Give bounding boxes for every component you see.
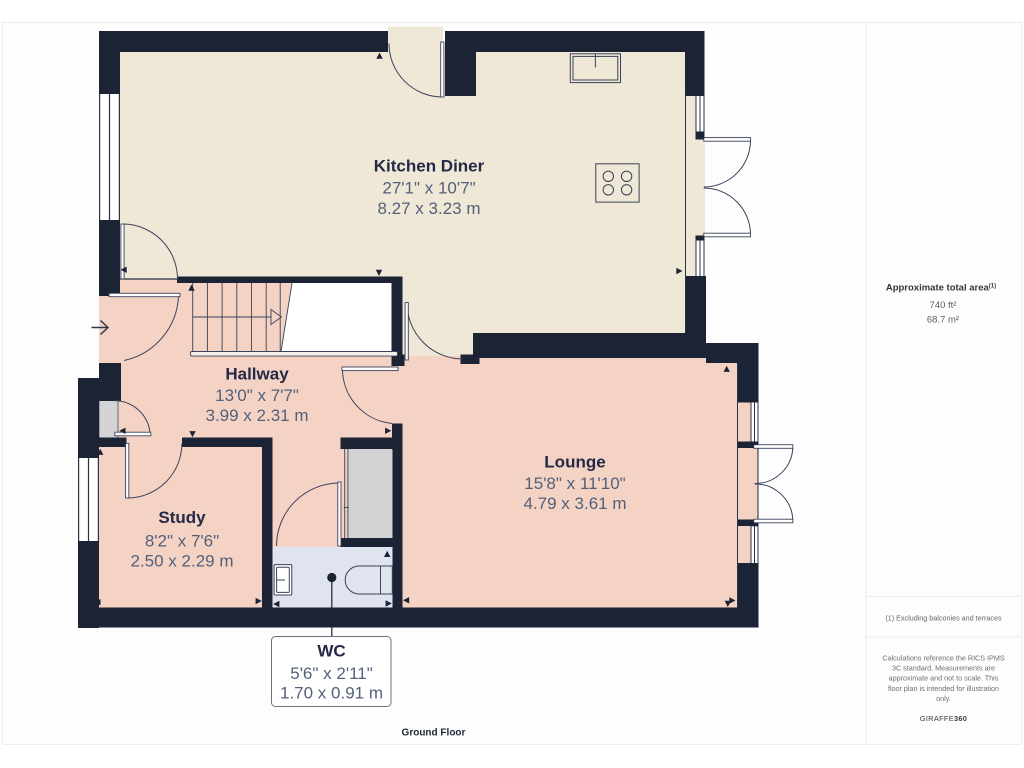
svg-text:4.79 x 3.61 m: 4.79 x 3.61 m xyxy=(523,494,626,513)
svg-text:floor plan is intended for ill: floor plan is intended for illustration xyxy=(888,684,999,693)
svg-text:WC: WC xyxy=(317,642,345,661)
svg-text:3.99 x 2.31 m: 3.99 x 2.31 m xyxy=(205,406,308,425)
svg-text:5'6" x 2'11": 5'6" x 2'11" xyxy=(290,664,373,683)
svg-text:27'1" x 10'7": 27'1" x 10'7" xyxy=(382,179,475,198)
svg-text:Kitchen Diner: Kitchen Diner xyxy=(374,157,485,176)
svg-text:Approximate total area(1): Approximate total area(1) xyxy=(886,283,996,294)
svg-text:Hallway: Hallway xyxy=(225,365,289,384)
svg-text:approximate and not to scale.: approximate and not to scale. This xyxy=(889,674,999,683)
svg-text:15'8" x 11'10": 15'8" x 11'10" xyxy=(524,474,625,493)
svg-text:3C standard. Measurements are: 3C standard. Measurements are xyxy=(892,664,995,673)
svg-text:68.7 m²: 68.7 m² xyxy=(927,315,959,326)
svg-text:Study: Study xyxy=(158,508,206,527)
svg-text:13'0" x 7'7": 13'0" x 7'7" xyxy=(215,386,299,405)
svg-text:740 ft²: 740 ft² xyxy=(930,300,957,311)
svg-text:2.50 x 2.29 m: 2.50 x 2.29 m xyxy=(130,552,233,571)
svg-text:8'2" x 7'6": 8'2" x 7'6" xyxy=(145,532,219,551)
svg-text:8.27 x 3.23 m: 8.27 x 3.23 m xyxy=(377,199,480,218)
svg-text:(1) Excluding balconies and te: (1) Excluding balconies and terraces xyxy=(885,614,1002,623)
svg-text:Ground Floor: Ground Floor xyxy=(402,728,466,739)
svg-text:GIRAFFE360: GIRAFFE360 xyxy=(920,714,967,723)
svg-text:only.: only. xyxy=(936,694,951,703)
svg-text:Lounge: Lounge xyxy=(544,453,605,472)
svg-text:Calculations reference the RIC: Calculations reference the RICS IPMS xyxy=(882,654,1004,663)
svg-text:1.70 x 0.91 m: 1.70 x 0.91 m xyxy=(280,684,383,703)
